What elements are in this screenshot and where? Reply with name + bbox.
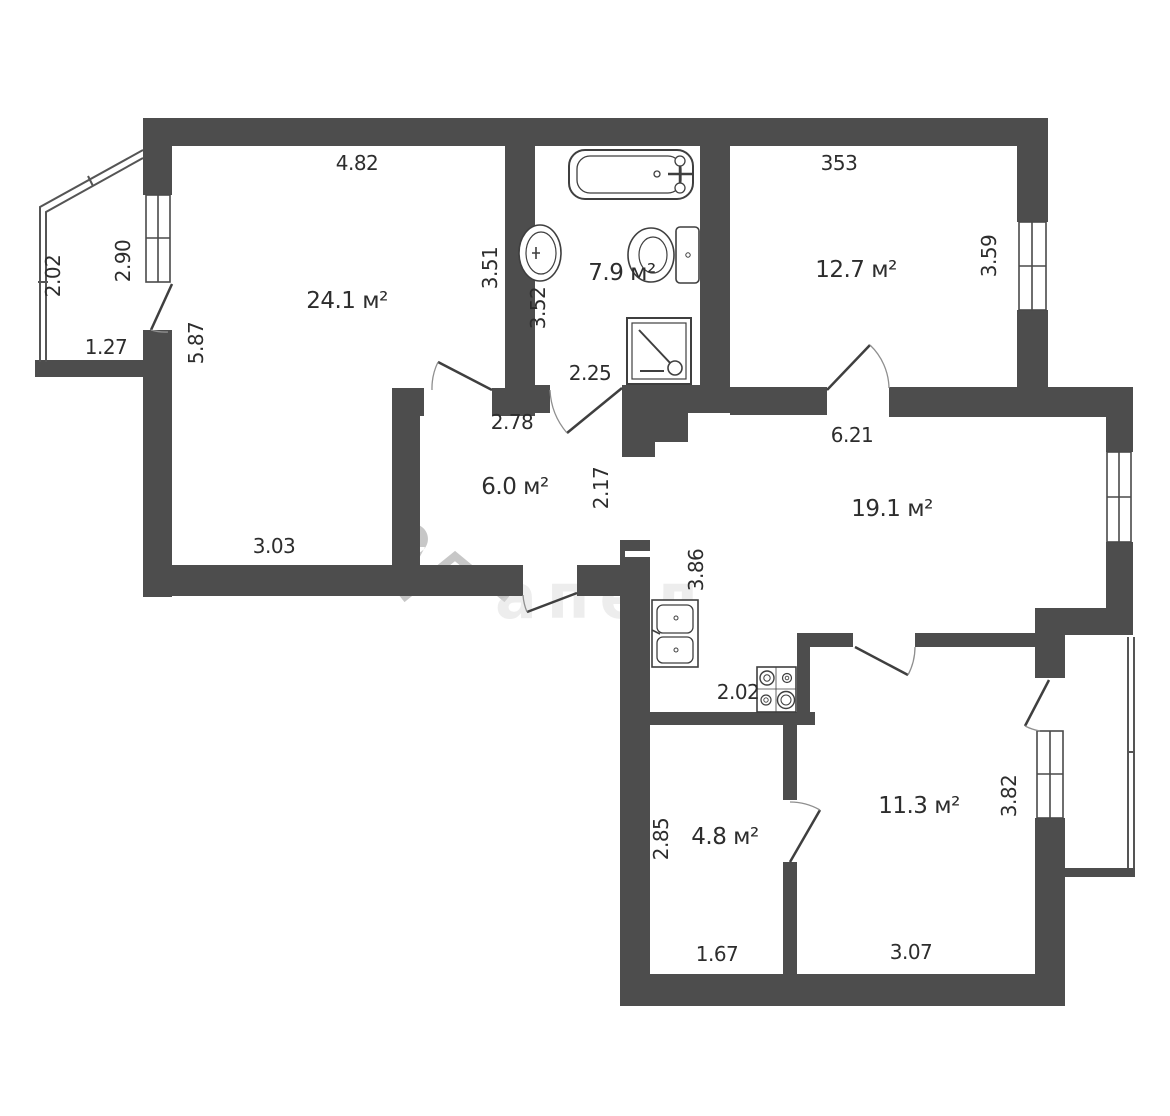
wall-segment	[505, 385, 550, 413]
wall-segment	[620, 540, 650, 1006]
balcony-right-glazing	[1128, 637, 1134, 868]
wall-segment	[392, 388, 424, 416]
wall-slit	[625, 551, 650, 557]
room-area-label: 24.1 м²	[306, 288, 388, 314]
window-balcony-2-90	[146, 195, 170, 282]
wall-segment	[915, 633, 1035, 647]
dimension-label: 3.82	[997, 775, 1021, 818]
dimension-label: 2.78	[491, 410, 534, 434]
room-area-label: 7.9 м²	[588, 260, 655, 286]
door-balcony	[151, 284, 172, 332]
window-kitchen	[1107, 452, 1131, 542]
wall-segment	[1017, 310, 1048, 387]
dimension-label: 353	[821, 151, 858, 175]
door-bedroom-top-right	[827, 345, 889, 390]
room-area-label: 11.3 м²	[878, 793, 960, 819]
dimension-label: 2.02	[717, 680, 760, 704]
dimension-label: 6.21	[831, 423, 874, 447]
dimension-label: 3.59	[977, 235, 1001, 278]
wall-segment	[1106, 415, 1133, 452]
door-storage	[790, 802, 820, 862]
wall-segment	[645, 712, 815, 725]
dimension-label: 3.03	[253, 534, 296, 558]
dimension-label: 2.17	[589, 467, 613, 510]
wall-segment	[620, 974, 1065, 1006]
door-bedroom-bottom-entry	[855, 647, 915, 675]
wall-segment	[1035, 635, 1065, 678]
floor-plan-canvas: апед	[0, 0, 1170, 1116]
dimension-label: 2.02	[41, 255, 65, 298]
wall-segment	[35, 360, 143, 377]
wall-segment	[622, 413, 688, 442]
wall-segment	[143, 565, 523, 596]
wall-segment	[783, 725, 797, 800]
kitchen-sink-icon	[652, 600, 698, 667]
dimension-label: 3.51	[478, 247, 502, 290]
window-bedroom-3-82	[1037, 731, 1063, 818]
floor-plan-page: апед	[0, 0, 1170, 1116]
wall-segment	[622, 442, 655, 457]
wall-segment	[1017, 146, 1048, 222]
dimension-label: 3.86	[684, 549, 708, 592]
dimension-label: 2.25	[569, 361, 612, 385]
door-bathroom-2-25	[550, 388, 622, 433]
shower-icon	[627, 318, 691, 384]
dimension-label: 3.07	[890, 940, 933, 964]
wall-segment	[700, 146, 730, 390]
dimension-label: 3.52	[526, 287, 550, 330]
wall-segment	[143, 118, 1048, 146]
wall-segment	[1035, 608, 1133, 635]
door-balcony-right	[1025, 680, 1049, 731]
wall-segment	[1065, 868, 1135, 877]
dimension-label: 2.90	[111, 240, 135, 283]
dimension-label: 5.87	[184, 322, 208, 365]
dimension-label: 1.27	[85, 335, 128, 359]
room-area-label: 6.0 м²	[481, 474, 548, 500]
wall-segment	[797, 633, 853, 647]
wall-segment	[730, 387, 827, 415]
wall-segment	[143, 330, 172, 597]
sink-icon	[519, 225, 561, 281]
wall-segment	[797, 647, 810, 712]
window-bedroom-3-59	[1019, 222, 1046, 310]
wall-segment	[143, 146, 172, 195]
door-living-2-78	[432, 362, 492, 390]
bathtub-icon	[569, 150, 693, 199]
dimension-label: 1.67	[696, 942, 739, 966]
stove-icon	[757, 667, 796, 712]
dimension-label: 2.85	[649, 818, 673, 861]
room-area-label: 19.1 м²	[851, 496, 933, 522]
wall-segment	[889, 387, 1133, 417]
wall-segment	[783, 862, 797, 974]
room-area-label: 12.7 м²	[815, 257, 897, 283]
room-area-label: 4.8 м²	[691, 824, 758, 850]
dimension-label: 4.82	[336, 151, 379, 175]
